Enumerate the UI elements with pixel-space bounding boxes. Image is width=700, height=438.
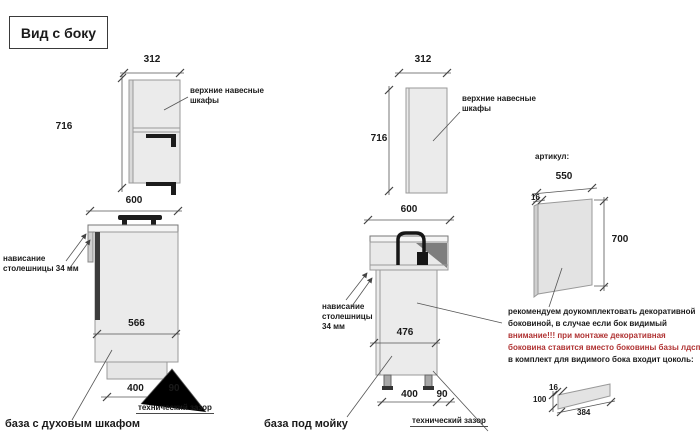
left-overhang-label: нависание столешницы 34 мм: [3, 254, 83, 274]
middle-overhang-arrow: [346, 273, 367, 300]
middle-upper-cabinet: [406, 88, 447, 193]
panel-height-dim: 700: [606, 234, 634, 245]
note-line-3: в комплект для видимого бока входит цоко…: [508, 354, 700, 366]
middle-base-cabinet: [370, 233, 448, 390]
left-upper-height-dim: 716: [46, 121, 82, 132]
plinth-height-dim: 100: [533, 395, 546, 404]
warning-line-1: внимание!!! при монтаже декоративная: [508, 330, 700, 342]
left-upper-cabinet-back-panel: [129, 80, 133, 183]
decorative-side-panel: [534, 199, 592, 297]
middle-base-caption: база под мойку: [264, 418, 348, 430]
left-base-cabinet-body: [95, 232, 178, 362]
left-upper-door-handle-mid: [146, 134, 176, 138]
middle-base-cabinet-body: [376, 270, 437, 375]
page-title: Вид с боку: [9, 16, 108, 49]
oven-door-handle-side: [88, 232, 93, 262]
left-base-plinth-dim: 400: [104, 383, 167, 394]
middle-upper-width-dim: 312: [399, 54, 447, 65]
plinth-thickness-dim: 16: [549, 383, 558, 392]
middle-base-depth-dim: 476: [374, 327, 436, 338]
left-base-caption: база с духовым шкафом: [5, 418, 140, 430]
drawing-canvas: [0, 0, 700, 438]
left-upper-cabinet-label: верхние навесные шкафы: [190, 86, 275, 106]
middle-upper-height-dim: 716: [361, 133, 397, 144]
article-label: артикул:: [535, 152, 569, 161]
middle-base-plinth-dim: 400: [382, 389, 437, 400]
note-line-1: рекомендуем доукомплектовать декоративно…: [508, 306, 700, 318]
left-base-width-dim: 600: [90, 195, 178, 206]
plinth-length-dim: 384: [577, 408, 590, 417]
middle-upper-cabinet-label: верхние навесные шкафы: [462, 94, 547, 114]
side-view-drawing: Вид с боку 312 716 верхние навесные шкаф…: [0, 0, 700, 438]
oven-top-handle: [118, 215, 162, 220]
left-base-countertop: [88, 225, 178, 232]
warning-line-2: боковина ставится вместо боковины базы л…: [508, 342, 700, 354]
left-base-cabinet: [88, 215, 178, 379]
side-panel-face: [538, 199, 592, 294]
panel-width-dim: 550: [540, 171, 588, 182]
middle-tech-gap-label: технический зазор: [410, 416, 488, 427]
middle-upper-cabinet-body: [406, 88, 447, 193]
middle-base-width-dim: 600: [368, 204, 450, 215]
faucet-base: [417, 252, 428, 265]
left-base-plinth: [107, 362, 167, 379]
side-panel-edge: [534, 204, 538, 297]
left-upper-width-dim: 312: [124, 54, 180, 65]
note-line-2: боковиной, в случае если бок видимый: [508, 318, 700, 330]
middle-overhang-label: нависание столешницы 34 мм: [322, 302, 377, 332]
notes-block: рекомендуем доукомплектовать декоративно…: [508, 306, 700, 366]
left-tech-gap-label: технический зазор: [136, 403, 214, 414]
cabinet-legs: [382, 375, 434, 390]
left-upper-cabinet: [129, 80, 180, 195]
middle-base-countertop: [370, 236, 448, 242]
left-base-gap-dim: 90: [163, 383, 185, 394]
panel-thickness-dim: 16: [531, 193, 540, 202]
left-upper-door-handle-bottom: [146, 182, 176, 186]
oven-door-front: [95, 232, 100, 320]
middle-base-gap-dim: 90: [432, 389, 452, 400]
left-base-depth-dim: 566: [97, 318, 176, 329]
